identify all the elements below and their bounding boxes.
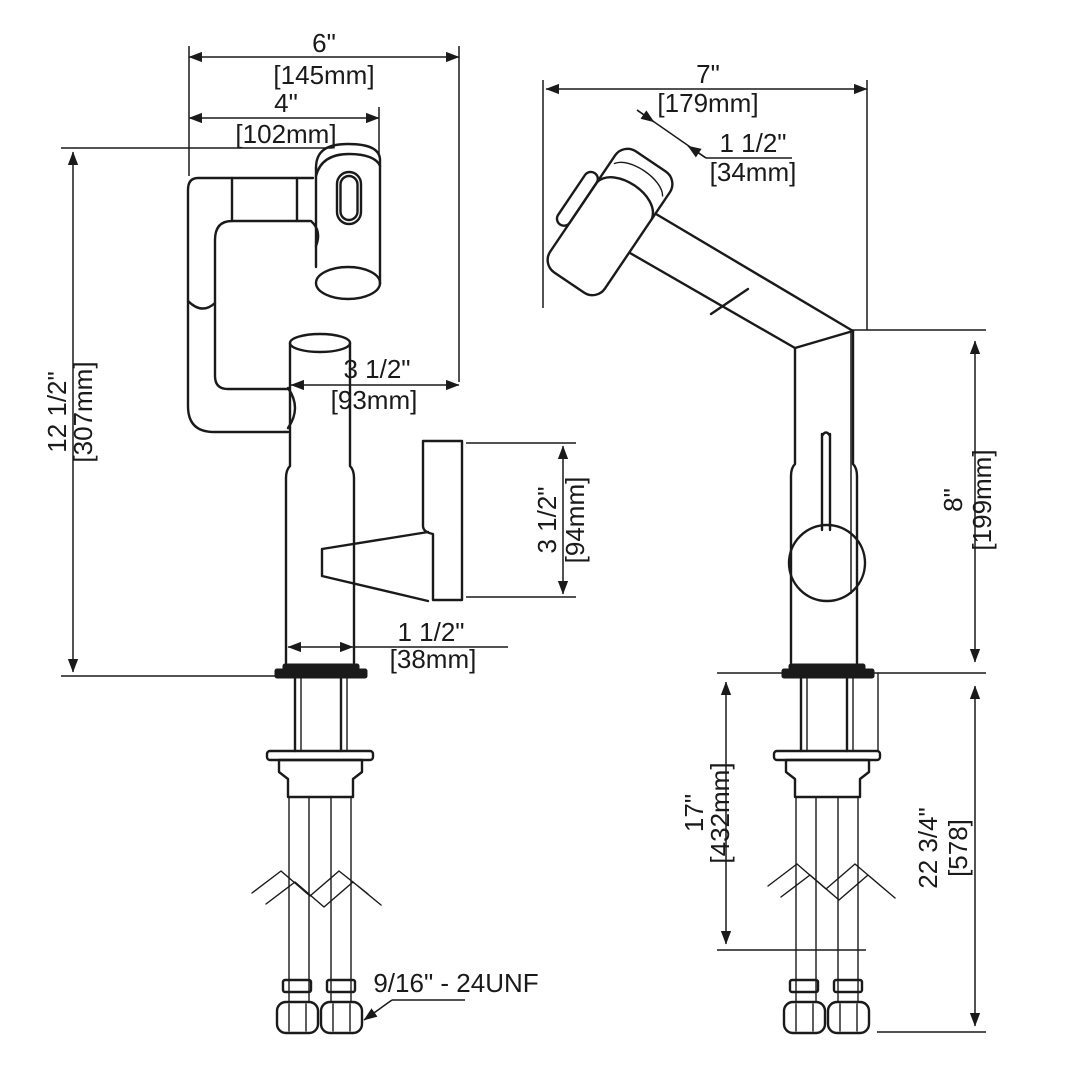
front-handle-height-mm: [94mm] xyxy=(560,477,590,564)
side-hose-length-mm: [432mm] xyxy=(705,762,735,863)
side-hose-collar-1 xyxy=(790,980,818,992)
front-hose-collar-1 xyxy=(283,980,311,992)
side-hose-nut-1-facets xyxy=(796,1004,813,1031)
front-arm-joint-seam xyxy=(188,301,215,309)
front-body-top xyxy=(290,334,350,352)
front-shank xyxy=(295,678,341,751)
side-overall-height-in: 22 3/4" xyxy=(913,807,943,889)
front-head-bottom xyxy=(316,267,380,299)
side-depth-mm: [179mm] xyxy=(657,88,758,118)
side-depth-in: 7" xyxy=(696,59,720,89)
side-shank xyxy=(801,678,847,751)
side-head-width-mm: [34mm] xyxy=(710,157,797,187)
front-overall-width-in: 6" xyxy=(312,28,336,58)
side-hose-nut-1 xyxy=(784,1002,825,1033)
front-spout-width-in: 4" xyxy=(274,88,298,118)
front-outlet-slot-inner xyxy=(341,176,358,220)
front-height-mm: [307mm] xyxy=(68,361,98,462)
front-base-dia-mm: [38mm] xyxy=(390,644,477,674)
side-head-width-in: 1 1/2" xyxy=(719,128,786,158)
side-hose-nut-2-facets xyxy=(840,1004,857,1031)
side-body-top-slant xyxy=(795,331,853,348)
side-spray-head xyxy=(530,135,678,301)
front-base-flange xyxy=(275,669,367,678)
side-view-outline xyxy=(530,135,895,1033)
drawing-canvas: 6" [145mm] 4" [102mm] 12 1/2" [307mm] 3 … xyxy=(0,0,1080,1080)
front-hose-nut-2-facets xyxy=(333,1004,350,1031)
side-hose-nut-2 xyxy=(828,1002,869,1033)
front-hose-nut-1-facets xyxy=(289,1004,306,1031)
side-head-width-arrow-1 xyxy=(637,110,654,122)
side-hose-break xyxy=(768,864,895,900)
side-height-mm: [199mm] xyxy=(967,449,997,550)
front-reach-in: 3 1/2" xyxy=(343,354,410,384)
front-thread-label: 9/16" - 24UNF xyxy=(373,968,538,998)
front-spout-width-mm: [102mm] xyxy=(235,119,336,149)
front-handle-block xyxy=(423,441,462,600)
side-handle-ball xyxy=(789,525,865,601)
front-thread-leader-arrow xyxy=(364,1000,392,1020)
side-mount-nut xyxy=(786,760,869,797)
front-height-ext xyxy=(61,148,332,676)
front-spout-inner xyxy=(215,221,310,389)
front-handle-height-in: 3 1/2" xyxy=(532,486,562,553)
front-hose-nut-2 xyxy=(321,1002,362,1033)
side-mount-flange xyxy=(774,751,880,760)
side-supply-hoses xyxy=(796,797,858,1002)
side-view-dimensions: 7" [179mm] 1 1/2" [34mm] 8" [199mm] 17" … xyxy=(543,59,997,1032)
front-supply-hoses xyxy=(289,797,351,1002)
side-body-right xyxy=(853,331,857,663)
side-head-cap-seam xyxy=(597,167,662,219)
side-handle-lever xyxy=(822,433,830,531)
front-view-outline xyxy=(188,144,462,1033)
front-reach-mm: [93mm] xyxy=(331,385,418,415)
side-head-body xyxy=(542,143,678,301)
side-body-left xyxy=(791,348,795,663)
front-hose-break xyxy=(252,871,381,907)
front-overall-width-mm: [145mm] xyxy=(273,60,374,90)
faucet-technical-drawing: 6" [145mm] 4" [102mm] 12 1/2" [307mm] 3 … xyxy=(0,0,1080,1080)
front-spout-outer xyxy=(188,178,313,432)
front-mount-flange xyxy=(267,751,373,760)
front-overall-width-ext xyxy=(189,46,459,382)
side-arm xyxy=(630,214,853,348)
side-head-button xyxy=(554,169,600,228)
front-handle-joint xyxy=(322,532,428,601)
front-hose-nut-1 xyxy=(277,1002,318,1033)
front-base-dia-in: 1 1/2" xyxy=(397,617,464,647)
front-mount-nut xyxy=(279,760,362,797)
side-height-in: 8" xyxy=(938,488,968,512)
front-body-left xyxy=(286,343,290,663)
side-head-width-arrow-2 xyxy=(688,146,706,158)
side-overall-height-mm: [578] xyxy=(943,819,973,877)
